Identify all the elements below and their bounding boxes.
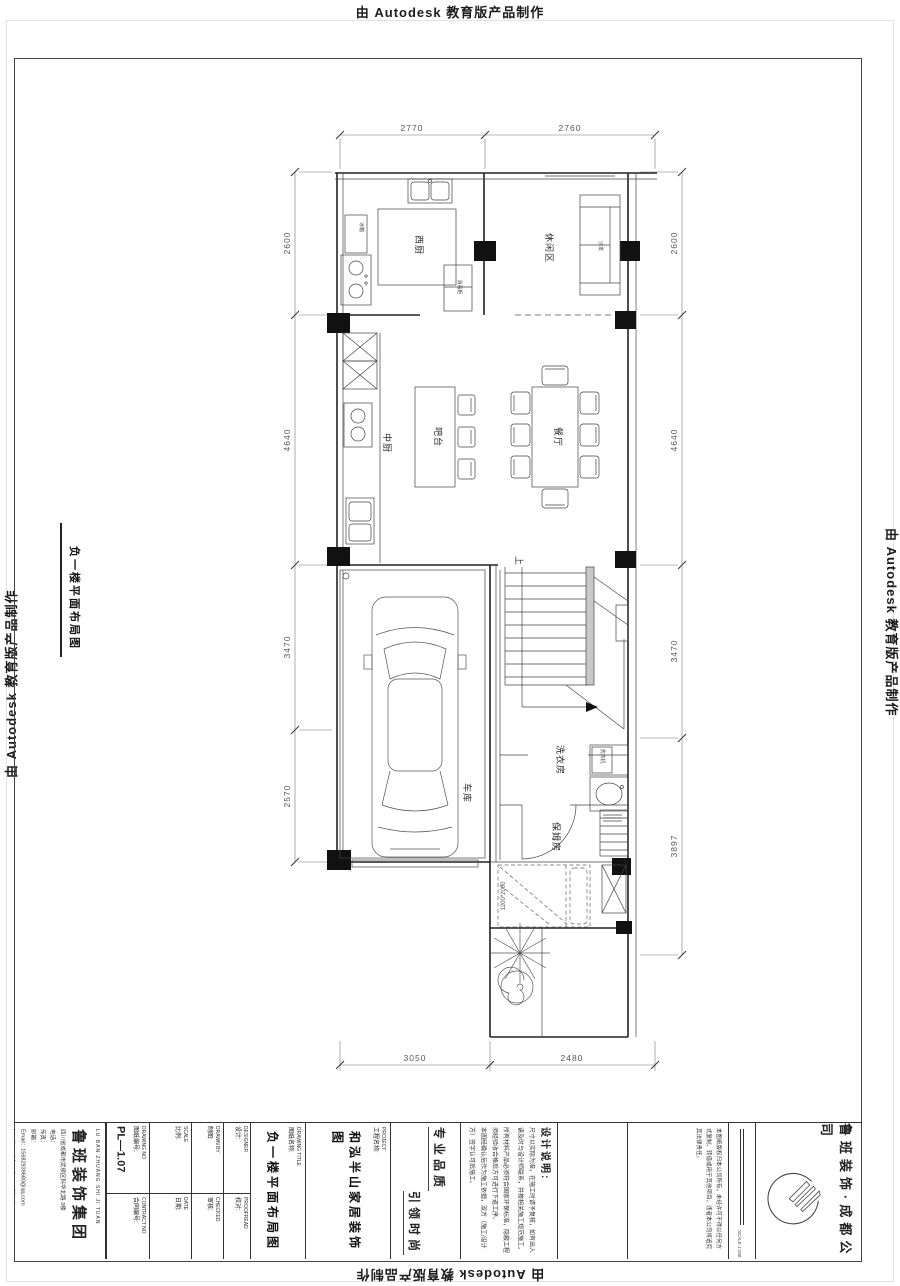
company-panel: LU BAN ZHUANG SHI JI TUAN 鲁班装饰集团 四川省成都市武… xyxy=(14,1123,105,1259)
project-panel: PROJECT 工程名称: 和泓半山家居装饰图 xyxy=(305,1123,390,1259)
slogan-1: 专业品质 xyxy=(428,1127,448,1191)
walls xyxy=(328,173,657,1037)
company-name-en: LU BAN ZHUANG SHI JI TUAN xyxy=(93,1129,101,1253)
room-label-chinese-kitchen: 中厨 xyxy=(382,433,393,453)
room-label-west-kitchen: 西厨 xyxy=(414,235,424,255)
dim-top-2: 2760 xyxy=(559,123,582,133)
dim-right-1: 2600 xyxy=(669,232,679,255)
room-label-leisure: 休闲区 xyxy=(544,233,555,263)
laundry-fixtures xyxy=(590,745,628,821)
dim-right-3: 3470 xyxy=(669,640,679,663)
luban-logo xyxy=(764,1153,826,1233)
design-note-3: 本图经确认后作为施工依据，双方（施工/设计方）签字认可后施工。 xyxy=(465,1127,488,1255)
company-mail: 邮箱： xyxy=(26,1129,36,1253)
room-label-laundry: 洗衣房 xyxy=(555,745,566,775)
brand-name: 鲁班装饰·成都公司 xyxy=(818,1123,856,1259)
plant xyxy=(490,923,550,1005)
dim-left-3: 3470 xyxy=(282,636,292,659)
dim-left-2: 4640 xyxy=(282,429,292,452)
company-email: Email：15682939680@qq.com xyxy=(17,1129,27,1253)
scale-note: SCALE 1:100 xyxy=(737,1230,742,1257)
title-block: LU BAN ZHUANG SHI JI TUAN 鲁班装饰集团 四川省成都市武… xyxy=(14,1122,862,1258)
car xyxy=(364,597,466,857)
autodesk-stamp-bottom: 由 Autodesk 教育版产品制作 xyxy=(320,1266,580,1285)
drawing-title-value: 负一楼平面布局图 xyxy=(264,1131,281,1255)
dim-bottom-2: 2480 xyxy=(561,1053,584,1063)
room-label-dining: 餐厅 xyxy=(553,427,564,447)
dim-left-4: 2570 xyxy=(282,785,292,808)
design-note-2: 所有材料产品必须符合国家环保标准，隐蔽工程须经验收合格后方可进行下道工序。 xyxy=(487,1127,510,1255)
design-notes-panel: 设计说明: 尺寸以实际为准，在施工时请予复核，如有出入请及时与设计师联系，并按相… xyxy=(460,1123,557,1259)
field-date: DATE 日期: xyxy=(149,1193,191,1259)
wall-inner-lines xyxy=(335,173,657,1037)
room-label-nanny: 保姆房 xyxy=(551,822,562,852)
brand-panel: 鲁班装饰·成都公司 xyxy=(755,1123,862,1259)
company-address: 四川省成都市武侯区科华北路 3楼 xyxy=(56,1129,66,1253)
dim-bottom-1: 3050 xyxy=(404,1053,427,1063)
drawing-no-value: PL—1.07 xyxy=(114,1126,126,1190)
floor-plan: 2770 2760 2600 4640 3470 2570 2600 4640 … xyxy=(270,115,730,1090)
bed-size-label: 1200*2000 xyxy=(501,881,507,911)
signature-panel xyxy=(557,1123,627,1259)
sofa-label: 沙发 xyxy=(597,241,604,251)
autodesk-stamp-right: 由 Autodesk 教育版产品制作 xyxy=(883,528,900,778)
room-label-bar: 吧台 xyxy=(433,427,444,447)
drawing-title-panel: DRAWING TITLE 图纸名称: 负一楼平面布局图 xyxy=(250,1123,305,1259)
fields-panel: DRAWING NO 图纸编号: PL—1.07 SCALE 比例: DRAWN… xyxy=(105,1123,250,1259)
field-contract-no: CONTRACT NO 合同编号: xyxy=(106,1193,149,1259)
dim-left-1: 2600 xyxy=(282,232,292,255)
scale-panel: SCALE 1:100 xyxy=(728,1123,755,1259)
stair-up-label: 上 xyxy=(514,556,524,566)
field-proofread: PROOFREAD 校对: xyxy=(223,1193,250,1259)
company-site: http://www.lubanzhuangshi.cn/ xyxy=(14,1129,17,1253)
stairs xyxy=(505,567,628,729)
dim-right-4: 3897 xyxy=(669,835,679,858)
room-label-garage: 车库 xyxy=(462,783,473,803)
slogan-panel: 专业品质 引领时尚 xyxy=(390,1123,460,1259)
field-drawn-by: DRAWN BY 制图: xyxy=(191,1123,223,1193)
dim-top-1: 2770 xyxy=(401,123,424,133)
design-note-1: 尺寸以实际为准，在施工时请予复核，如有出入请及时与设计师联系，并按相关施工规范施… xyxy=(513,1127,536,1255)
autodesk-stamp-top: 由 Autodesk 教育版产品制作 xyxy=(0,2,900,21)
sheet-title-underline xyxy=(60,523,62,657)
scale-line xyxy=(740,1129,744,1225)
nanny-room xyxy=(522,805,628,859)
dim-right-2: 4640 xyxy=(669,429,679,452)
slogan-2: 引领时尚 xyxy=(403,1191,423,1255)
project-value: 和泓半山家居装饰图 xyxy=(329,1131,363,1255)
company-tel: 电话： xyxy=(46,1129,56,1253)
washer-label: 洗衣机 xyxy=(599,748,606,763)
copyright-text: 本图纸版权归本公司所有，未经许可不得以任何方式复制、转借或用于其他项目，违者本公… xyxy=(627,1128,722,1254)
west-kitchen-fixtures xyxy=(341,179,472,311)
design-notes-title: 设计说明: xyxy=(539,1127,554,1255)
drawing-sheet: 由 Autodesk 教育版产品制作 由 Autodesk 教育版产品制作 由 … xyxy=(0,0,900,1286)
field-checked: CHECKED 审核: xyxy=(191,1193,223,1259)
chinese-kitchen-fixtures xyxy=(343,333,380,563)
cabinet-label: 消毒柜 xyxy=(456,279,463,294)
copyright-panel: 本图纸版权归本公司所有，未经许可不得以任何方式复制、转借或用于其他项目，违者本公… xyxy=(627,1123,728,1259)
field-scale: SCALE 比例: xyxy=(149,1123,191,1193)
field-designer: DESIGNER 设计: xyxy=(223,1123,250,1193)
company-name: 鲁班装饰集团 xyxy=(69,1129,90,1253)
field-drawing-no: DRAWING NO 图纸编号: PL—1.07 xyxy=(106,1123,149,1193)
fridge-label: 冰箱 xyxy=(358,222,365,232)
bed xyxy=(498,865,590,927)
sheet-title: 负一楼平面布局图 xyxy=(67,546,83,656)
bar-counter xyxy=(415,387,475,487)
garage xyxy=(340,570,485,867)
company-fax: 传真： xyxy=(36,1129,46,1253)
